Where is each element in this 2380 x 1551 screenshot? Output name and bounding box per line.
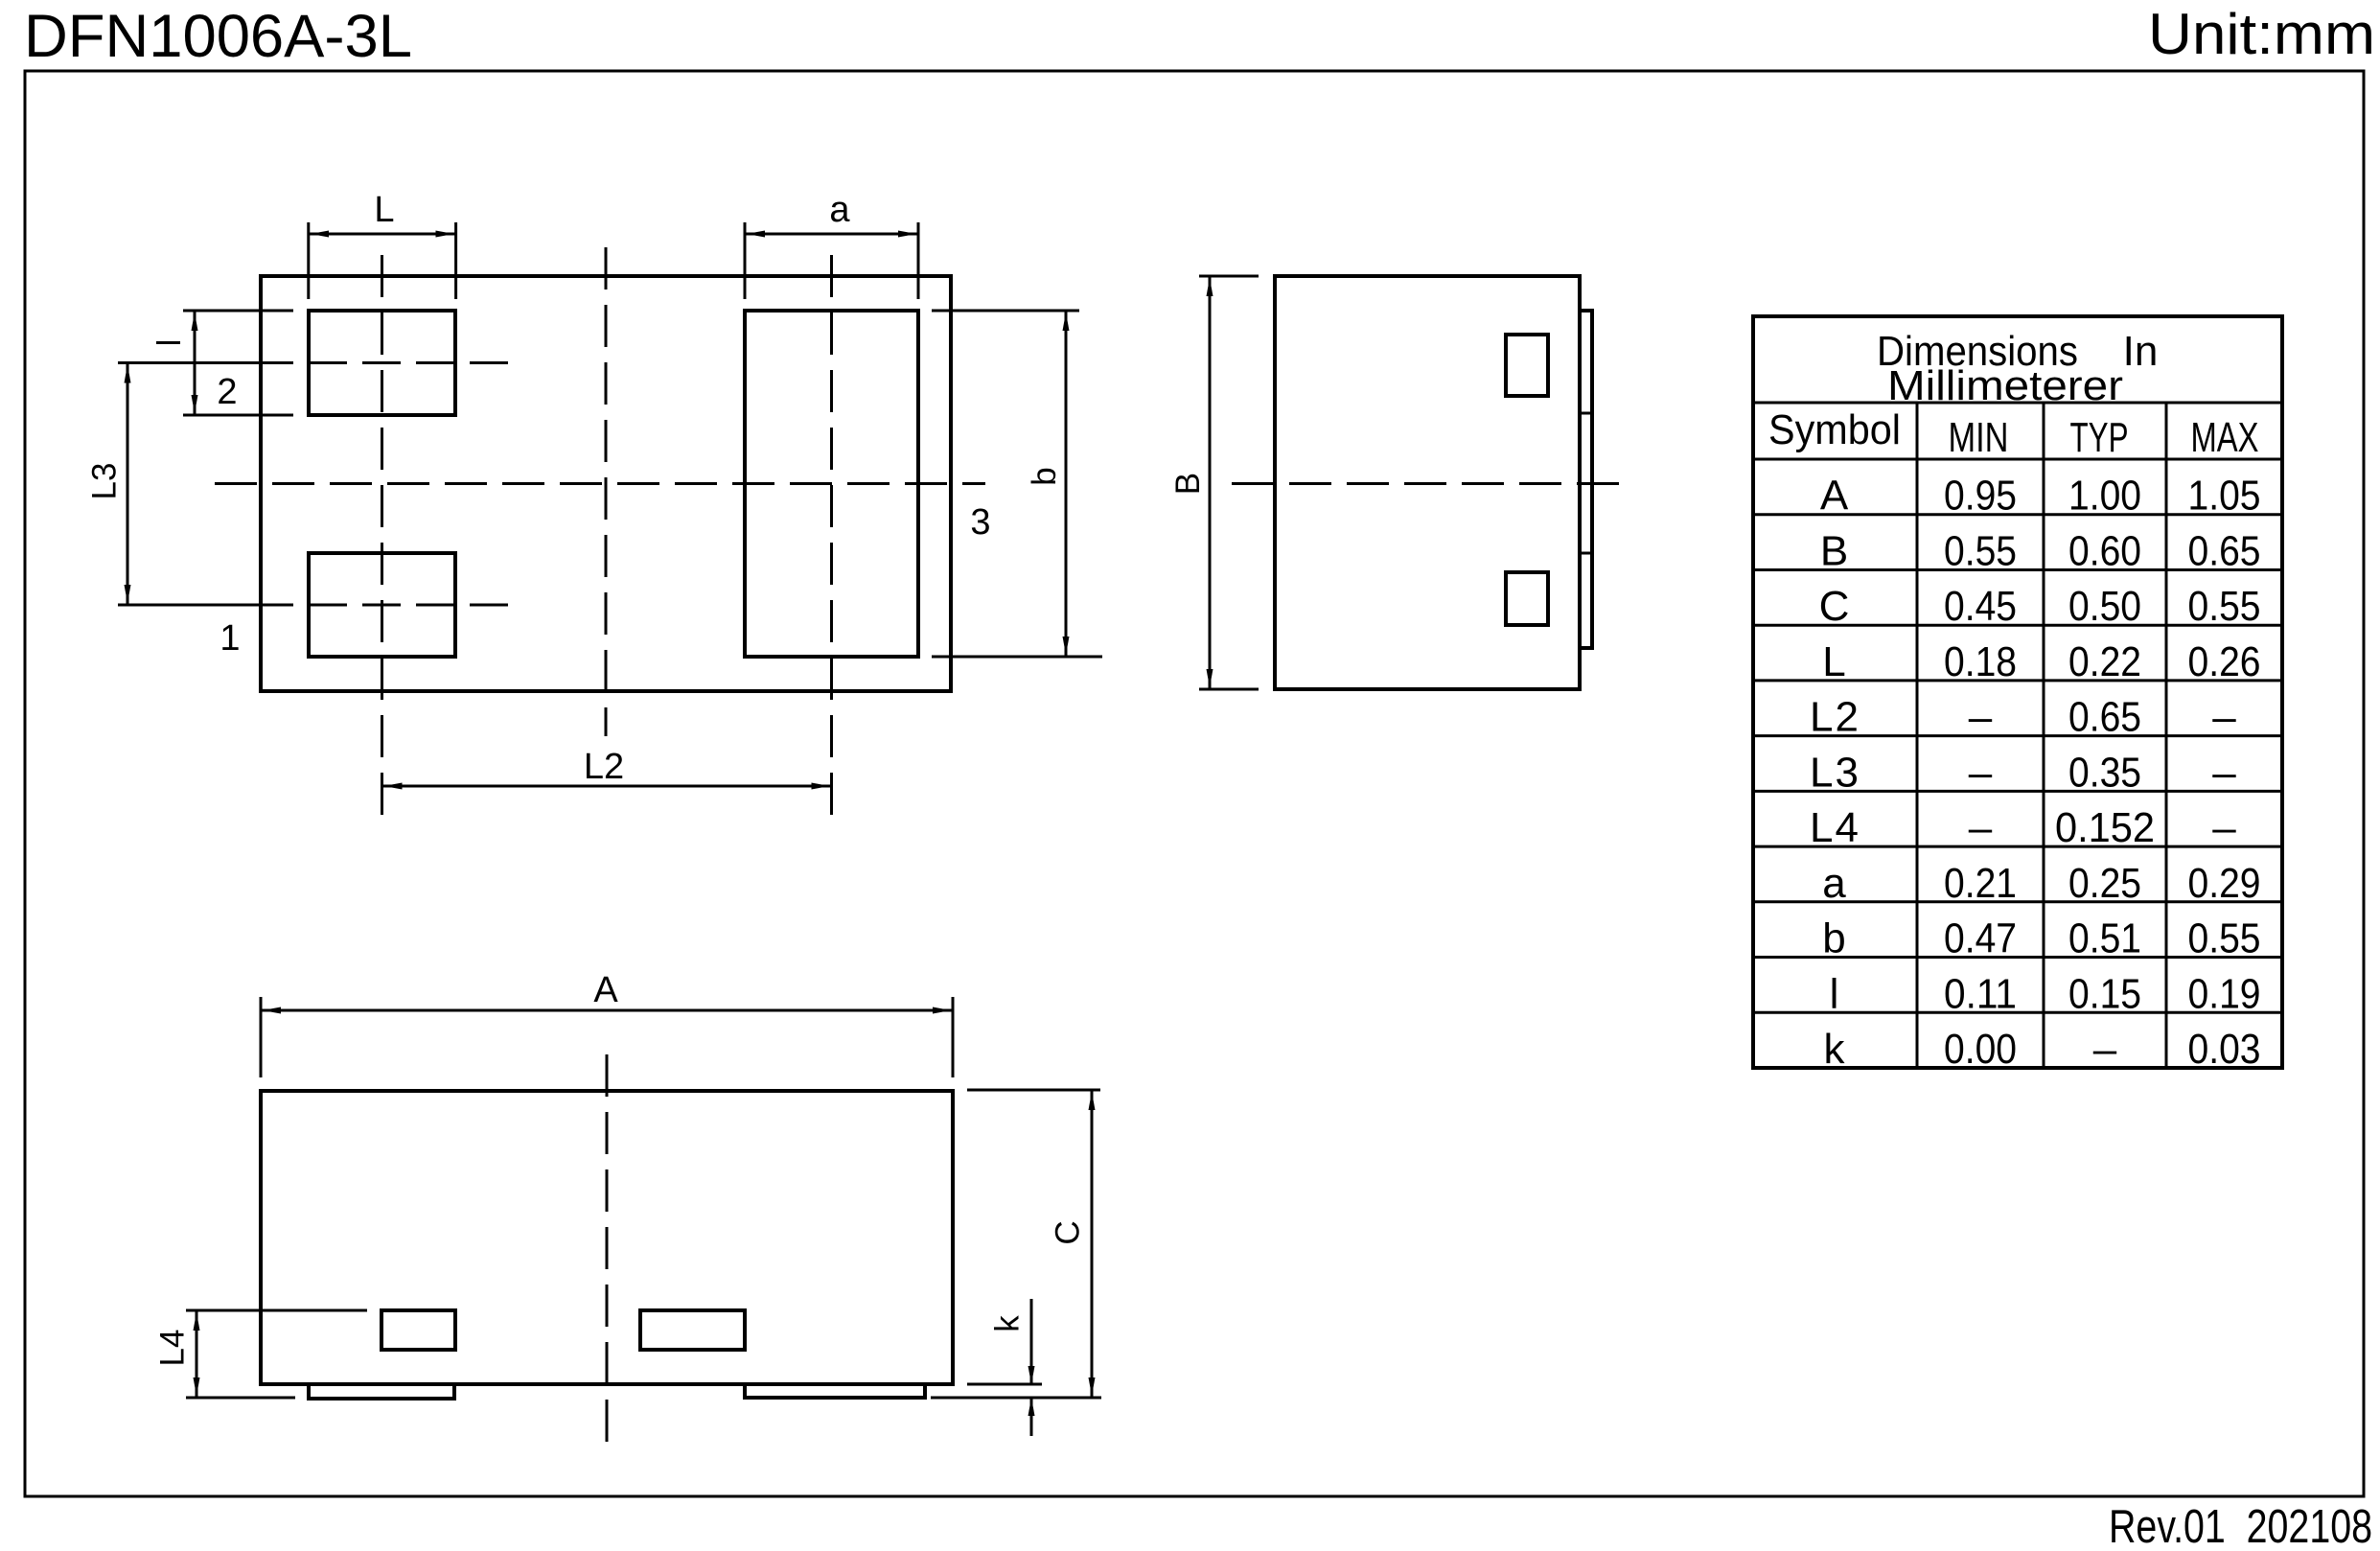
svg-text:1.00: 1.00	[2068, 473, 2141, 520]
svg-text:0.19: 0.19	[2188, 970, 2261, 1017]
svg-text:1: 1	[220, 618, 240, 659]
svg-text:DFN1006A-3L: DFN1006A-3L	[24, 3, 412, 70]
svg-text:b: b	[1026, 467, 1063, 485]
svg-text:0.65: 0.65	[2188, 528, 2261, 575]
svg-text:L2: L2	[1810, 694, 1860, 741]
svg-text:0.03: 0.03	[2188, 1026, 2261, 1073]
svg-text:0.55: 0.55	[1944, 528, 2017, 575]
svg-text:Rev.01 202108: Rev.01 202108	[2109, 1501, 2372, 1546]
svg-text:0.55: 0.55	[2188, 915, 2261, 962]
svg-text:0.25: 0.25	[2068, 860, 2141, 907]
svg-text:0.152: 0.152	[2055, 804, 2155, 851]
svg-text:2: 2	[217, 372, 237, 412]
svg-text:l: l	[1830, 970, 1841, 1017]
svg-text:b: b	[1822, 915, 1847, 962]
svg-text:–: –	[1969, 804, 1993, 851]
svg-text:0.51: 0.51	[2068, 915, 2141, 962]
svg-text:MAX: MAX	[2191, 414, 2259, 461]
svg-text:3: 3	[970, 502, 990, 543]
svg-text:L4: L4	[154, 1330, 192, 1367]
svg-text:In: In	[2123, 328, 2159, 375]
svg-text:a: a	[1822, 860, 1847, 907]
svg-text:0.50: 0.50	[2068, 583, 2141, 630]
svg-text:1.05: 1.05	[2188, 473, 2261, 520]
svg-text:–: –	[2212, 694, 2236, 741]
svg-text:C: C	[1819, 583, 1852, 630]
svg-text:0.29: 0.29	[2188, 860, 2261, 907]
svg-text:–: –	[1969, 749, 1993, 796]
svg-text:k: k	[1824, 1026, 1847, 1073]
svg-text:B: B	[1169, 473, 1207, 495]
svg-text:l: l	[151, 339, 188, 347]
svg-text:0.18: 0.18	[1944, 638, 2017, 685]
svg-text:L3: L3	[86, 463, 124, 500]
svg-text:0.45: 0.45	[1944, 583, 2017, 630]
svg-text:0.55: 0.55	[2188, 583, 2261, 630]
svg-text:–: –	[2093, 1026, 2117, 1073]
svg-text:0.22: 0.22	[2068, 638, 2141, 685]
svg-text:L: L	[374, 190, 394, 230]
svg-text:–: –	[2212, 749, 2236, 796]
svg-text:B: B	[1820, 528, 1850, 575]
svg-text:0.11: 0.11	[1944, 970, 2017, 1017]
svg-text:L3: L3	[1810, 749, 1860, 796]
svg-text:L4: L4	[1810, 804, 1860, 851]
svg-text:0.35: 0.35	[2068, 749, 2141, 796]
svg-text:0.15: 0.15	[2068, 970, 2141, 1017]
svg-text:Millimeterer: Millimeterer	[1887, 362, 2123, 409]
svg-text:Symbol: Symbol	[1768, 406, 1901, 453]
svg-text:L2: L2	[584, 747, 624, 787]
svg-text:k: k	[989, 1315, 1027, 1332]
svg-text:0.00: 0.00	[1944, 1026, 2017, 1073]
svg-text:A: A	[1820, 473, 1850, 520]
svg-text:0.47: 0.47	[1944, 915, 2017, 962]
svg-text:0.21: 0.21	[1944, 860, 2017, 907]
svg-text:0.26: 0.26	[2188, 638, 2261, 685]
svg-text:MIN: MIN	[1949, 414, 2009, 461]
svg-text:Unit:mm: Unit:mm	[2148, 2, 2375, 66]
svg-text:0.95: 0.95	[1944, 473, 2017, 520]
svg-text:0.60: 0.60	[2068, 528, 2141, 575]
svg-text:0.65: 0.65	[2068, 694, 2141, 741]
svg-text:–: –	[1969, 694, 1993, 741]
svg-text:A: A	[593, 970, 618, 1010]
svg-text:–: –	[2212, 804, 2236, 851]
svg-text:C: C	[1050, 1220, 1087, 1244]
svg-text:TYP: TYP	[2070, 414, 2129, 461]
svg-text:a: a	[829, 190, 850, 230]
svg-text:L: L	[1822, 638, 1847, 685]
